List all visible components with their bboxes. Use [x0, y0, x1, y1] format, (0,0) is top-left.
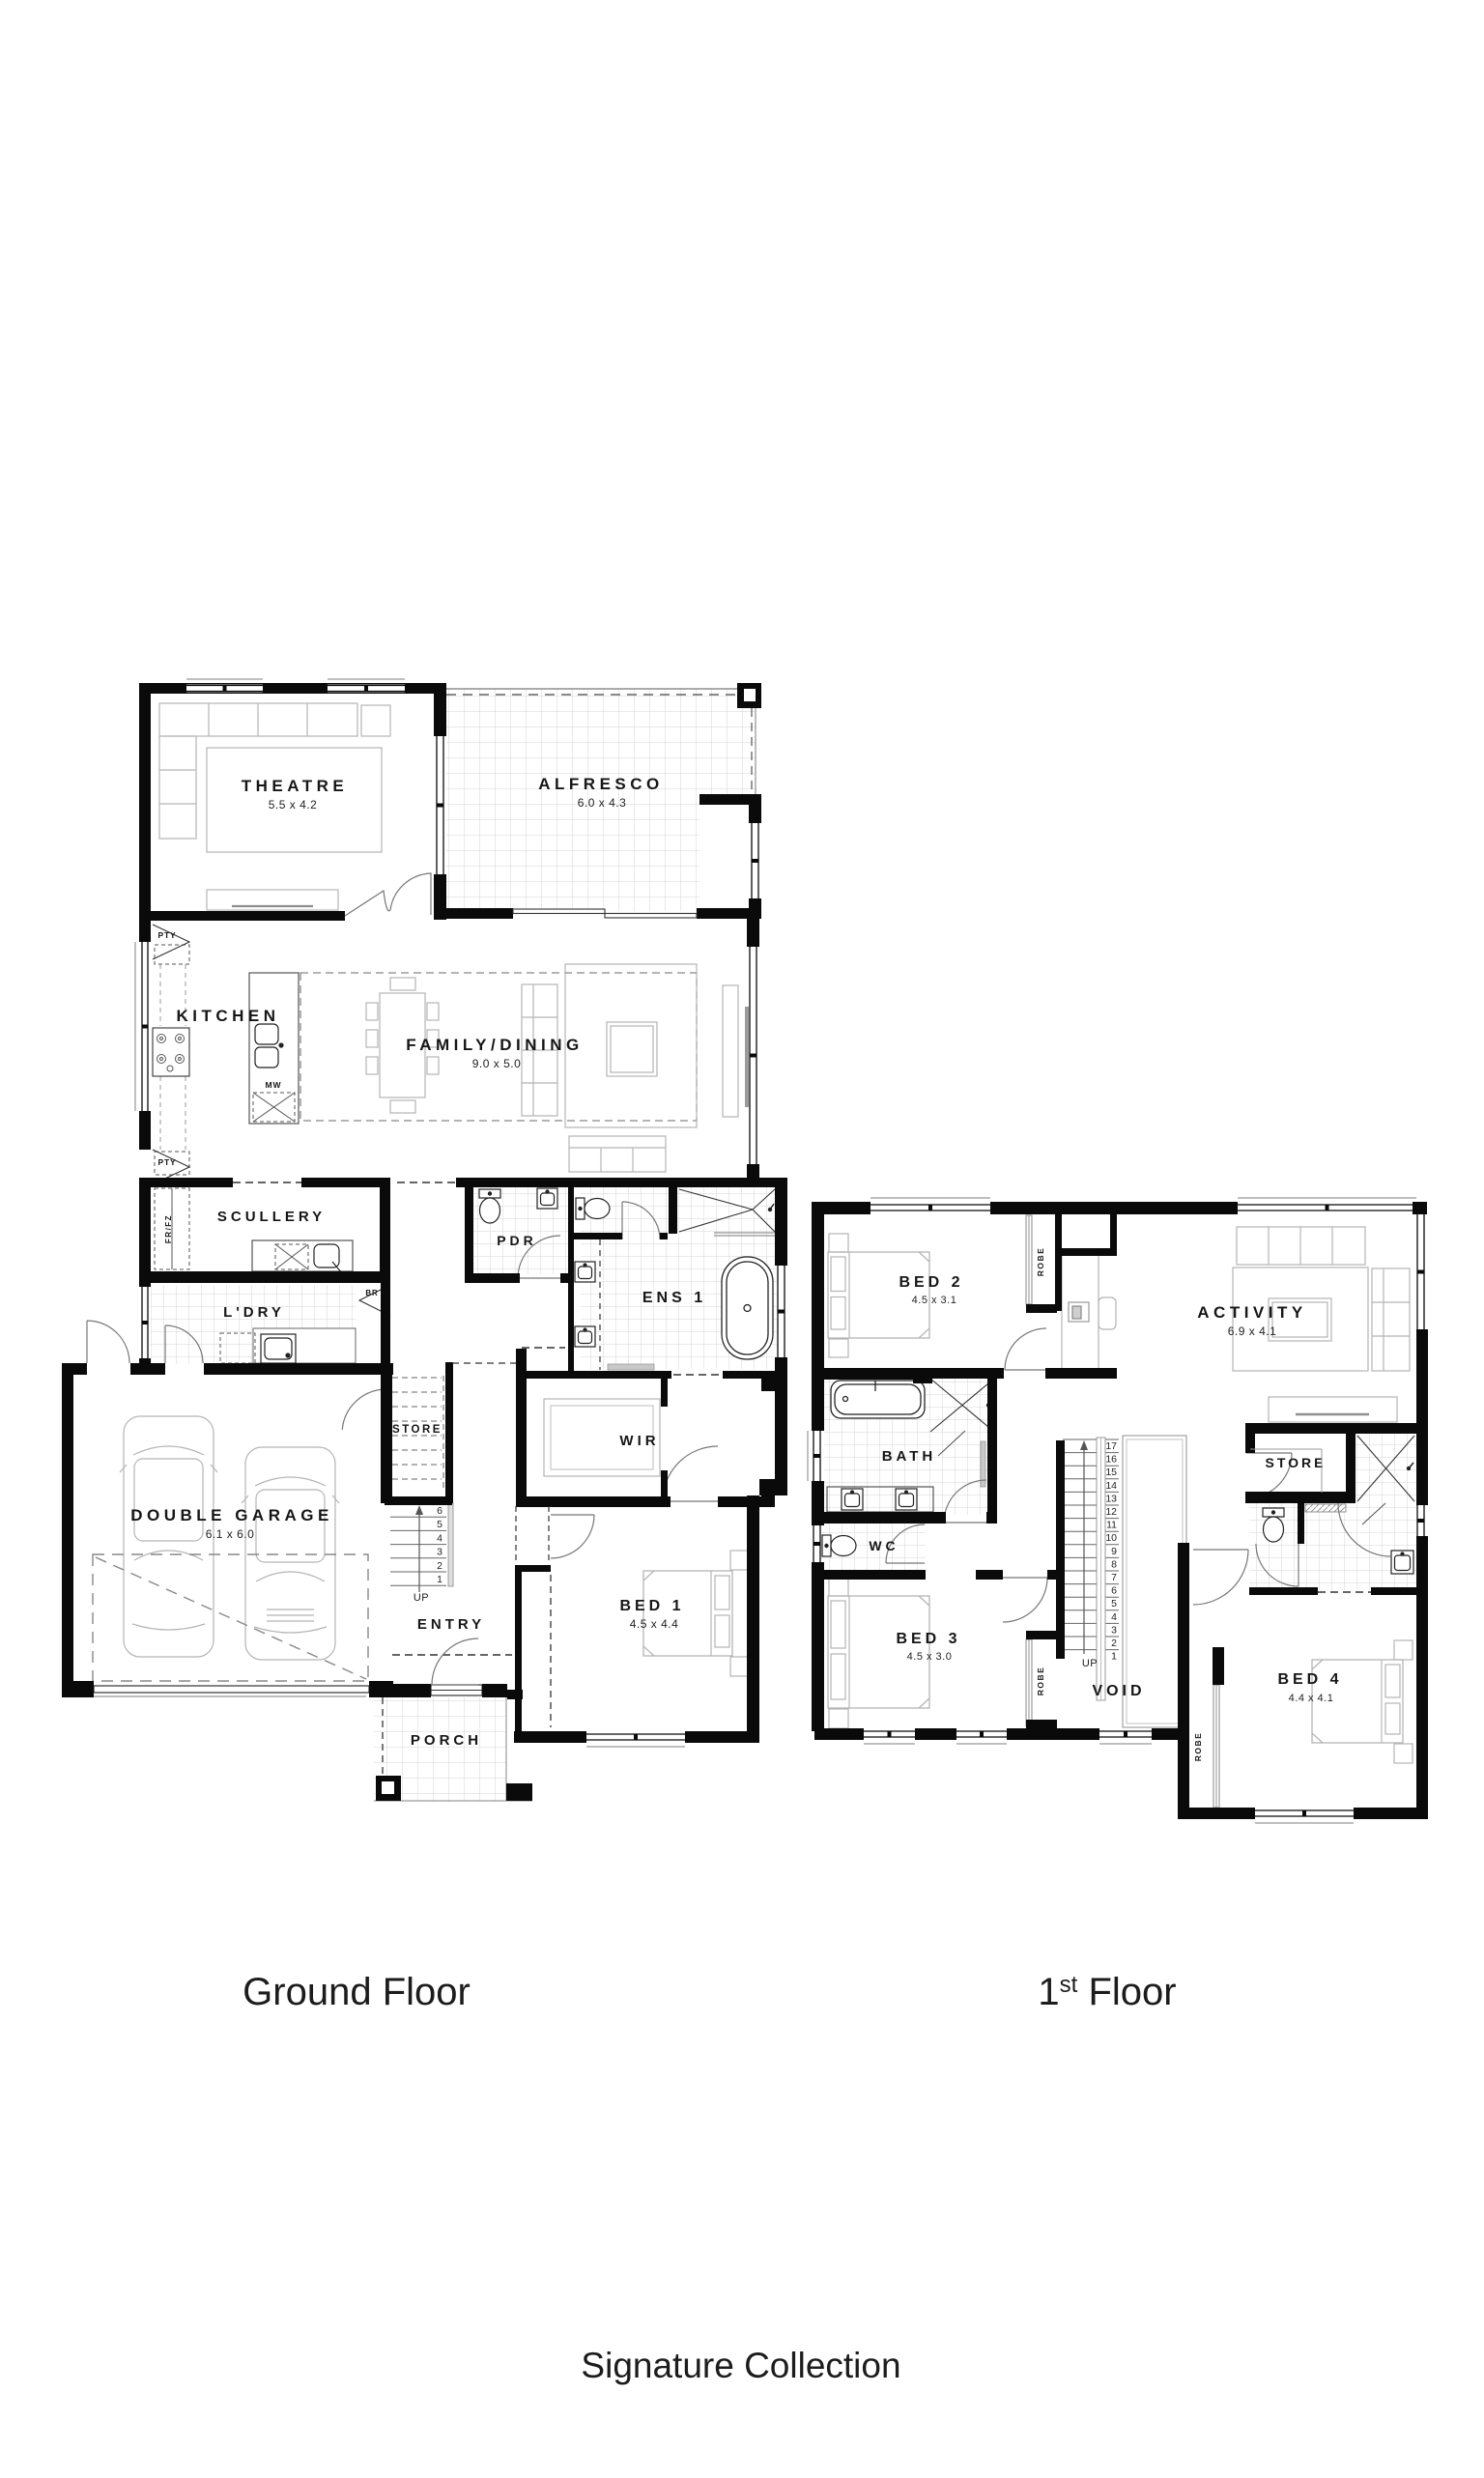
svg-text:4.5 x 3.1: 4.5 x 3.1	[912, 1295, 957, 1306]
svg-text:ROBE: ROBE	[1036, 1247, 1045, 1277]
svg-text:5: 5	[437, 1519, 442, 1530]
svg-text:BED 4: BED 4	[1277, 1671, 1342, 1688]
svg-text:ENS 1: ENS 1	[642, 1290, 706, 1306]
svg-text:KITCHEN: KITCHEN	[176, 1007, 279, 1025]
svg-text:BR: BR	[365, 1289, 378, 1297]
svg-text:9: 9	[1111, 1546, 1117, 1557]
svg-text:6.9 x 4.1: 6.9 x 4.1	[1228, 1324, 1277, 1338]
svg-text:4: 4	[437, 1532, 442, 1544]
svg-text:15: 15	[1105, 1467, 1117, 1478]
svg-text:11: 11	[1106, 1520, 1117, 1531]
svg-text:PTY: PTY	[158, 1157, 177, 1167]
svg-text:12: 12	[1105, 1506, 1117, 1518]
svg-text:DOUBLE GARAGE: DOUBLE GARAGE	[130, 1506, 333, 1524]
svg-text:PDR: PDR	[497, 1233, 537, 1248]
svg-text:2: 2	[437, 1560, 442, 1572]
svg-text:16: 16	[1105, 1454, 1117, 1466]
svg-text:VOID: VOID	[1092, 1683, 1145, 1699]
svg-text:MW: MW	[265, 1080, 281, 1090]
svg-text:4.4 x 4.1: 4.4 x 4.1	[1289, 1693, 1334, 1704]
svg-text:7: 7	[1111, 1572, 1117, 1583]
svg-text:ROBE: ROBE	[1036, 1666, 1045, 1696]
svg-text:BED 2: BED 2	[899, 1274, 963, 1291]
svg-text:SCULLERY: SCULLERY	[217, 1209, 326, 1225]
svg-text:4.5 x 4.4: 4.5 x 4.4	[630, 1617, 679, 1631]
svg-text:PORCH: PORCH	[411, 1732, 482, 1749]
svg-text:THEATRE: THEATRE	[242, 777, 349, 795]
svg-text:ALFRESCO: ALFRESCO	[538, 775, 664, 793]
svg-text:8: 8	[1111, 1558, 1117, 1570]
svg-text:3: 3	[1111, 1624, 1117, 1636]
svg-text:2: 2	[1111, 1638, 1117, 1649]
svg-text:FAMILY/DINING: FAMILY/DINING	[406, 1036, 584, 1054]
svg-text:6: 6	[1111, 1585, 1117, 1597]
svg-text:1: 1	[437, 1574, 442, 1585]
svg-text:BATH: BATH	[882, 1448, 937, 1465]
svg-text:STORE: STORE	[392, 1424, 442, 1436]
svg-text:6.0 x 4.3: 6.0 x 4.3	[578, 796, 627, 810]
svg-text:13: 13	[1105, 1493, 1117, 1504]
svg-text:L'DRY: L'DRY	[223, 1304, 285, 1321]
svg-text:9.0 x 5.0: 9.0 x 5.0	[472, 1057, 522, 1070]
svg-text:STORE: STORE	[1266, 1455, 1327, 1470]
svg-text:ENTRY: ENTRY	[417, 1616, 485, 1633]
svg-text:5.5 x 4.2: 5.5 x 4.2	[269, 798, 318, 812]
svg-text:UP: UP	[1082, 1658, 1098, 1669]
svg-text:FR/FZ: FR/FZ	[164, 1214, 173, 1243]
svg-text:14: 14	[1105, 1480, 1117, 1492]
svg-text:1st Floor: 1st Floor	[1038, 1971, 1176, 2013]
svg-text:Ground Floor: Ground Floor	[243, 1971, 471, 2013]
svg-text:ACTIVITY: ACTIVITY	[1197, 1303, 1306, 1322]
svg-text:BED 1: BED 1	[619, 1598, 684, 1614]
svg-text:WC: WC	[869, 1538, 899, 1553]
svg-text:6.1 x 6.0: 6.1 x 6.0	[206, 1527, 255, 1541]
svg-text:Signature Collection: Signature Collection	[581, 2346, 900, 2385]
svg-text:10: 10	[1105, 1532, 1117, 1544]
svg-text:5: 5	[1111, 1598, 1117, 1609]
svg-text:ROBE: ROBE	[1193, 1732, 1203, 1762]
svg-text:4.5 x 3.0: 4.5 x 3.0	[907, 1651, 953, 1663]
svg-text:BED 3: BED 3	[896, 1631, 960, 1647]
svg-text:17: 17	[1105, 1440, 1117, 1452]
svg-text:3: 3	[437, 1547, 442, 1558]
svg-text:UP: UP	[414, 1592, 429, 1604]
svg-text:6: 6	[437, 1505, 442, 1517]
svg-text:4: 4	[1111, 1611, 1117, 1623]
svg-text:WIR: WIR	[619, 1433, 659, 1449]
svg-text:1: 1	[1111, 1651, 1117, 1663]
svg-text:PTY: PTY	[158, 930, 177, 940]
